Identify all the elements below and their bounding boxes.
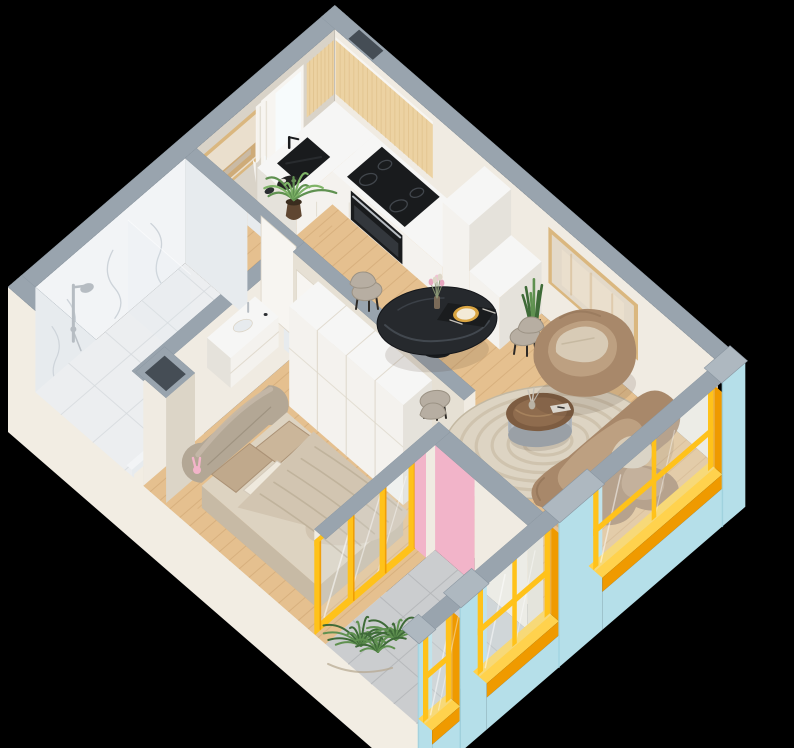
bottle bbox=[264, 313, 268, 316]
toy-bunny bbox=[193, 466, 201, 474]
slider-post bbox=[348, 507, 354, 605]
pillar-face bbox=[722, 362, 745, 527]
slider-post bbox=[380, 480, 386, 578]
wall-pillar bbox=[722, 362, 745, 527]
floorplan-stage bbox=[0, 0, 794, 748]
slider-post bbox=[409, 455, 415, 553]
flower bbox=[438, 274, 443, 281]
flower bbox=[433, 277, 438, 284]
flower bbox=[440, 280, 445, 287]
slider-post bbox=[314, 536, 320, 634]
bunny-ear bbox=[199, 458, 200, 466]
apartment-isometric-render bbox=[0, 0, 794, 748]
